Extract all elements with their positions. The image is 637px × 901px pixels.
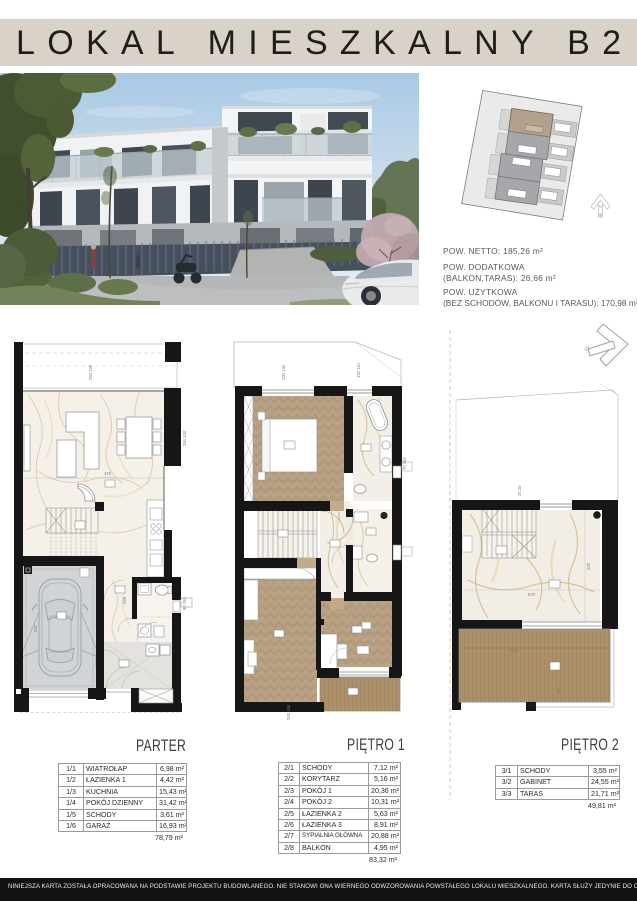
svg-text:90 250: 90 250	[182, 597, 187, 610]
svg-text:528: 528	[122, 596, 127, 604]
svg-text:230 130: 230 130	[281, 364, 286, 380]
svg-text:670: 670	[528, 592, 536, 597]
svg-text:300: 300	[556, 686, 561, 694]
svg-text:250 130: 250 130	[88, 364, 93, 380]
svg-text:250 130: 250 130	[182, 430, 187, 446]
svg-text:476: 476	[104, 471, 112, 476]
svg-text:400: 400	[586, 562, 591, 570]
svg-text:25 20: 25 20	[517, 485, 522, 496]
svg-text:746: 746	[510, 648, 518, 653]
svg-text:662: 662	[33, 624, 38, 632]
svg-text:120 110: 120 110	[356, 363, 361, 378]
svg-text:70 250: 70 250	[402, 457, 407, 470]
svg-text:200 155: 200 155	[286, 704, 291, 720]
